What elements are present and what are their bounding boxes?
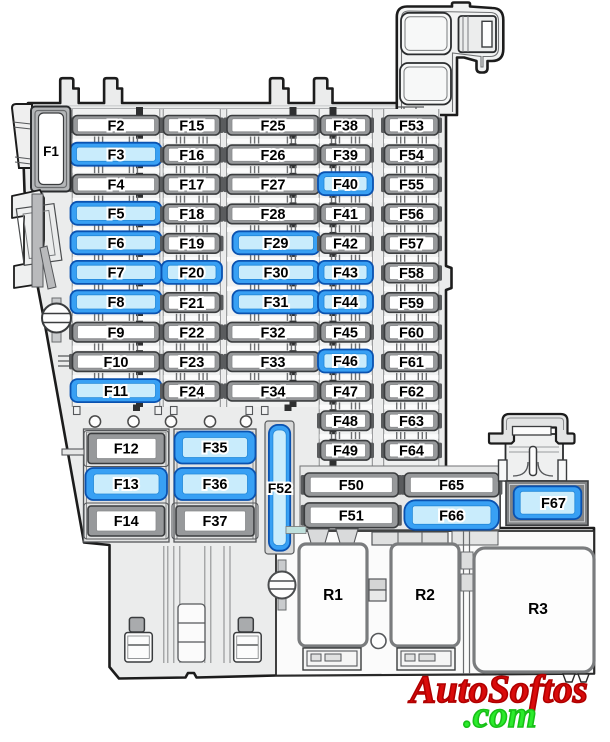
svg-text:F34: F34 [261, 384, 286, 400]
svg-text:F45: F45 [333, 325, 358, 341]
svg-text:F64: F64 [399, 444, 424, 460]
svg-text:F4: F4 [108, 178, 125, 194]
svg-text:F44: F44 [333, 295, 358, 311]
svg-text:F36: F36 [203, 477, 228, 493]
svg-text:F20: F20 [179, 266, 204, 282]
svg-text:F39: F39 [333, 148, 358, 164]
svg-text:F1: F1 [43, 144, 59, 159]
svg-text:F28: F28 [261, 207, 286, 223]
svg-text:F53: F53 [399, 119, 424, 135]
svg-text:F24: F24 [179, 384, 204, 400]
svg-text:F10: F10 [104, 355, 129, 371]
svg-text:F65: F65 [439, 478, 464, 494]
svg-text:F56: F56 [399, 207, 424, 223]
svg-text:F17: F17 [179, 178, 204, 194]
svg-text:F26: F26 [261, 148, 286, 164]
svg-text:F66: F66 [439, 508, 464, 524]
svg-text:F16: F16 [179, 148, 204, 164]
svg-text:F46: F46 [333, 354, 358, 370]
svg-text:R2: R2 [415, 587, 435, 604]
svg-text:F59: F59 [399, 296, 424, 312]
svg-text:F9: F9 [108, 325, 125, 341]
svg-text:F23: F23 [179, 355, 204, 371]
svg-text:F22: F22 [179, 325, 204, 341]
svg-text:F32: F32 [261, 325, 286, 341]
svg-text:F50: F50 [339, 478, 364, 494]
svg-text:F7: F7 [108, 266, 125, 282]
svg-text:F35: F35 [203, 441, 228, 457]
svg-text:F52: F52 [268, 480, 292, 496]
svg-text:F8: F8 [108, 295, 125, 311]
svg-text:F15: F15 [179, 119, 204, 135]
svg-text:F21: F21 [179, 296, 204, 312]
svg-text:F5: F5 [108, 207, 125, 223]
svg-text:F25: F25 [261, 119, 286, 135]
svg-text:F6: F6 [108, 236, 125, 252]
svg-text:F27: F27 [261, 178, 286, 194]
svg-text:F67: F67 [541, 496, 566, 512]
svg-text:F31: F31 [264, 295, 289, 311]
svg-text:F3: F3 [108, 147, 125, 163]
svg-text:F55: F55 [399, 178, 424, 194]
svg-text:F14: F14 [114, 514, 139, 530]
svg-text:F13: F13 [114, 477, 139, 493]
svg-text:F2: F2 [108, 119, 125, 135]
svg-text:F61: F61 [399, 355, 424, 371]
svg-text:F43: F43 [333, 266, 358, 282]
svg-text:F38: F38 [333, 119, 358, 135]
svg-text:F47: F47 [333, 384, 358, 400]
svg-text:F12: F12 [114, 442, 139, 458]
svg-text:F51: F51 [339, 509, 364, 525]
svg-text:F60: F60 [399, 325, 424, 341]
svg-text:F11: F11 [104, 384, 128, 400]
svg-text:F19: F19 [179, 237, 204, 253]
svg-text:R1: R1 [323, 587, 343, 604]
svg-text:F58: F58 [399, 266, 424, 282]
svg-text:F30: F30 [264, 266, 289, 282]
svg-text:F29: F29 [264, 236, 289, 252]
svg-text:F37: F37 [203, 514, 228, 530]
svg-text:F18: F18 [179, 207, 204, 223]
svg-text:F33: F33 [261, 355, 286, 371]
svg-text:F57: F57 [399, 237, 424, 253]
svg-text:F42: F42 [333, 237, 358, 253]
svg-text:.com: .com [464, 695, 537, 736]
svg-text:R3: R3 [528, 601, 548, 618]
svg-text:F48: F48 [333, 414, 358, 430]
svg-text:F54: F54 [399, 148, 424, 164]
svg-text:F40: F40 [333, 177, 358, 193]
svg-text:F63: F63 [399, 414, 424, 430]
svg-text:F49: F49 [333, 444, 358, 460]
svg-text:F41: F41 [333, 207, 358, 223]
svg-text:F62: F62 [399, 384, 424, 400]
